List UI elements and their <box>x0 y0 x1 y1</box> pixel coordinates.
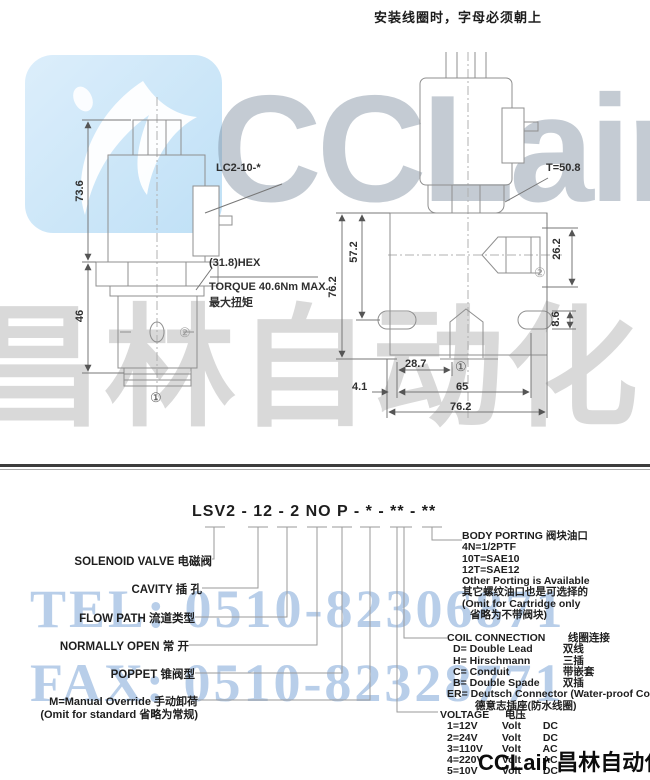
dim-76-2-vert: 76.2 <box>327 270 339 304</box>
callout-solenoid-valve: SOLENOID VALVE 电磁阀 <box>74 553 212 569</box>
voltage-code: 1=12V <box>447 721 499 732</box>
port1-mark-right: ① <box>455 359 467 375</box>
port2-mark-left: ② <box>179 325 191 341</box>
torque-label: TORQUE 40.6Nm MAX. <box>209 281 329 293</box>
section-divider <box>0 464 650 470</box>
dim-4-1: 4.1 <box>352 381 367 393</box>
body-porting-line: 省略为不带阀块) <box>462 610 590 621</box>
t-torque-label: T=50.8 <box>546 162 581 174</box>
coil-option-cn: 双线 <box>563 643 584 655</box>
coil-option-cn: 三插 <box>563 655 584 667</box>
coil-option: D= Double Lead 双线 <box>447 644 650 655</box>
callout-normally-open: NORMALLY OPEN 常 开 <box>60 638 189 654</box>
dim-65: 65 <box>456 381 468 393</box>
callout-poppet: POPPET 锥阀型 <box>111 666 195 682</box>
body-porting-block: BODY PORTING 阀块油口 4N=1/2PTF 10T=SAE10 12… <box>462 531 590 621</box>
body-porting-line: 4N=1/2PTF <box>462 542 590 553</box>
coil-option-code: D= Double Lead <box>453 644 560 655</box>
dim-57-2: 57.2 <box>348 235 360 269</box>
port2-mark-right: ② <box>534 265 546 281</box>
voltage-type: DC <box>543 732 558 744</box>
hex-size-label: (31.8)HEX <box>209 257 260 269</box>
dim-46: 46 <box>74 299 86 333</box>
footer-brand: CCLair 昌林自动化 <box>478 745 650 777</box>
callout-cavity: CAVITY 插 孔 <box>132 581 203 597</box>
dim-28-7: 28.7 <box>405 358 426 370</box>
coil-option-cn: 双插 <box>563 677 584 689</box>
voltage-title-cn: 电压 <box>505 709 526 721</box>
model-code: LSV2 - 12 - 2 NO P - * - ** - ** <box>192 503 436 521</box>
voltage-unit: Volt <box>502 721 540 732</box>
voltage-type: DC <box>543 720 558 732</box>
dim-73-6: 73.6 <box>74 174 86 208</box>
datasheet-page: CCLair 昌林自动化 TEL: 0510-82306871 FAX: 051… <box>0 0 650 780</box>
torque-cn-label: 最大扭矩 <box>209 294 253 310</box>
callout-manual-override-note: (Omit for standard 省略为常规) <box>40 706 198 722</box>
dim-8-6: 8.6 <box>550 302 562 336</box>
port1-mark-left: ① <box>150 390 162 406</box>
coil-model-label: LC2-10-* <box>216 162 261 174</box>
callout-flow-path: FLOW PATH 流道类型 <box>79 610 195 626</box>
dim-26-2: 26.2 <box>551 232 563 266</box>
dim-76-2-bottom: 76.2 <box>450 401 471 413</box>
coil-connection-block: COIL CONNECTION 线圈连接 D= Double Lead 双线 H… <box>447 633 650 712</box>
voltage-option: 1=12V Volt DC <box>440 721 558 732</box>
install-note: 安装线圈时，字母必须朝上 <box>374 7 542 26</box>
